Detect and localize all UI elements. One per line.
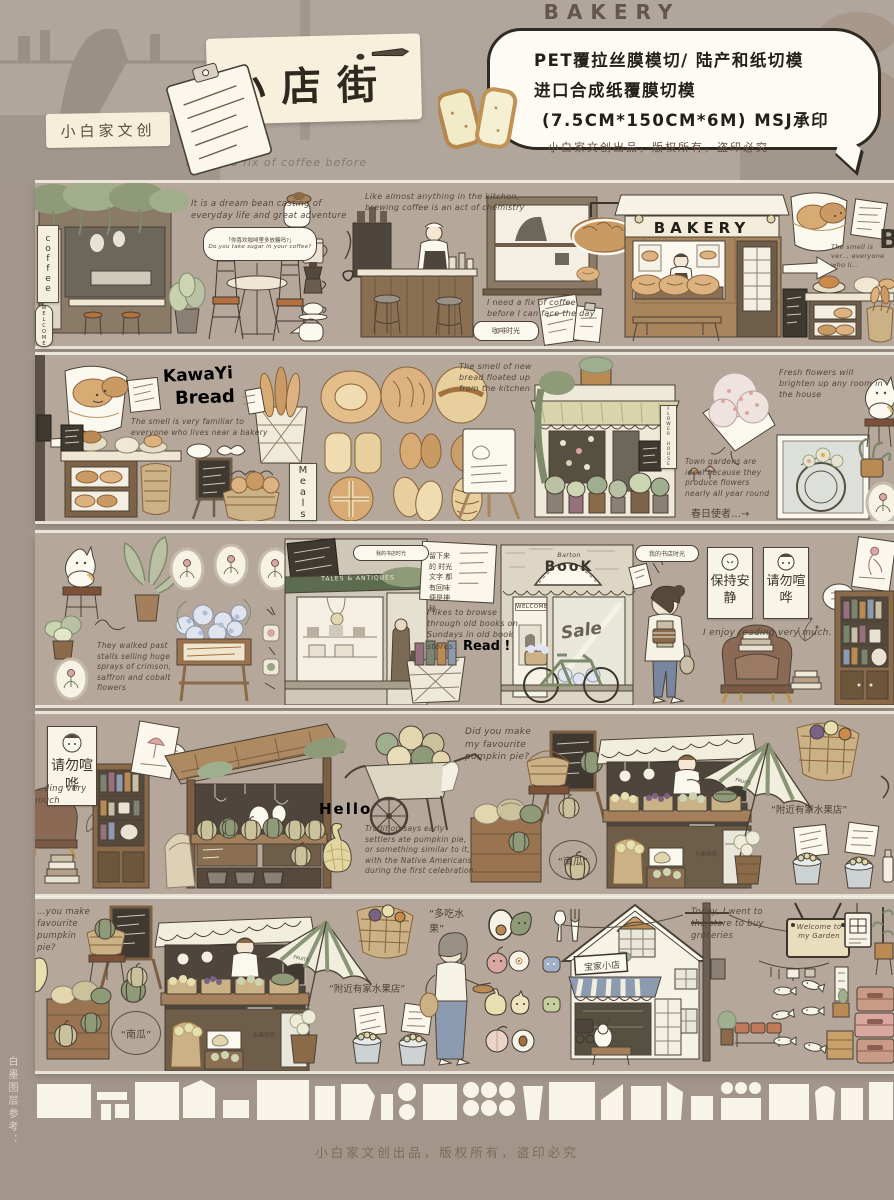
white-cat-on-stool bbox=[63, 547, 101, 619]
washi-strip-garden: …you make favourite pumpkin pie? “南瓜” FR… bbox=[35, 899, 894, 1071]
fruit-bucket bbox=[399, 1034, 427, 1065]
white-layer-label: 白墨图层参考： bbox=[4, 1056, 19, 1147]
bubble-en: Do you take sugar in your coffee? bbox=[209, 244, 312, 252]
framed-flower-picture bbox=[777, 435, 869, 519]
bread-counter-shop bbox=[61, 425, 181, 517]
flower-barrel bbox=[734, 831, 761, 884]
script-cn: 春日使者…→ bbox=[691, 505, 749, 520]
clothesline bbox=[759, 961, 829, 981]
script-fruit-shop: “附近有家水果店” bbox=[771, 802, 889, 816]
bakery-sign-text: BAKERY bbox=[627, 219, 777, 237]
girl-bubble: 我的书店时光 bbox=[635, 545, 699, 562]
script-dream: It is a dream bean casting of everyday l… bbox=[191, 199, 356, 223]
garden-sign-text: Welcome to my Garden bbox=[791, 923, 847, 941]
fruit-basket-top bbox=[357, 905, 413, 958]
vegetable-crate bbox=[47, 981, 111, 1059]
script-more-fruit: “多吃水果” bbox=[429, 905, 473, 935]
potted-plant bbox=[169, 273, 205, 333]
bread-bag bbox=[65, 366, 128, 432]
washi-strip-market: 请勿喧哗 …ding very much Hello Tradition say… bbox=[35, 714, 894, 894]
kawayi-heading: KawaYi bbox=[163, 363, 234, 387]
bakery-storefront bbox=[615, 195, 807, 341]
bouquet bbox=[703, 373, 775, 465]
shop-pill-bubble: 我的书店时光 bbox=[353, 545, 429, 561]
sale-card: 水果特卖 bbox=[690, 850, 722, 858]
script-pie: Did you make my favourite pumpkin pie? bbox=[465, 726, 539, 764]
product-spec-bubble: PET覆拉丝膜模切/ 陆产和纸切模 进口合成纸覆膜切模 (7.5CM*150CM… bbox=[487, 28, 881, 150]
fruit-bucket bbox=[845, 857, 873, 888]
poster-face-icons bbox=[707, 551, 809, 573]
heart-icon bbox=[343, 271, 353, 281]
baguette-basket bbox=[243, 367, 307, 463]
poster-face-icon bbox=[59, 732, 85, 754]
flower-cart bbox=[176, 599, 251, 701]
coffee-bar-counter bbox=[353, 207, 477, 337]
welcome-ribbon: WELCOME bbox=[35, 305, 53, 347]
script-fresh: Fresh flowers will brighten up any room … bbox=[779, 367, 884, 401]
coffee-vertical-sign: coffee bbox=[37, 225, 59, 303]
washi-strip-coffee: coffee WELCOME It is a dream bean castin… bbox=[35, 183, 894, 346]
sale-card: 水果特卖 bbox=[247, 1031, 281, 1039]
flower-barrel bbox=[290, 1010, 317, 1063]
footer-copyright: 小白家文创出品，版权所有，盗印必究 bbox=[0, 1142, 894, 1161]
pear-icons bbox=[485, 989, 529, 1015]
script-enjoy: I enjoy reading very much. bbox=[703, 627, 843, 640]
brand-label: 小白家文创 bbox=[46, 112, 171, 148]
spec-line: PET覆拉丝膜模切/ 陆产和纸切模 bbox=[534, 47, 804, 71]
meals-sign: Meals bbox=[289, 463, 317, 521]
peach-icons bbox=[486, 1026, 534, 1052]
script-smell: The smell is very familiar to everyone w… bbox=[131, 417, 271, 438]
flower-stamp bbox=[867, 483, 894, 521]
script-fix: I need a fix of coffee before I can face… bbox=[487, 297, 605, 319]
edge-letter: B bbox=[879, 225, 894, 255]
script-fruit-shop: “附近有家水果店” bbox=[329, 981, 441, 995]
fruit-stand bbox=[597, 734, 757, 888]
pumpkin-stamp: “南瓜” bbox=[111, 1011, 161, 1055]
washi-tape-poster: BAKERY 小白家文创 小店街 PET覆拉丝膜模切/ 陆产和纸切模 进口合成纸… bbox=[0, 0, 894, 1200]
small-crate bbox=[827, 1031, 853, 1059]
chat-tags bbox=[543, 957, 560, 1012]
script-today: Today, I went to the store to buy grocer… bbox=[691, 907, 779, 943]
flower-stamp bbox=[215, 545, 247, 585]
spec-line: 进口合成纸覆膜切模 bbox=[534, 77, 696, 101]
flower-shop bbox=[531, 357, 679, 517]
script-walked: They walked past stalls selling huge spr… bbox=[97, 641, 185, 694]
backdrop-bakery-sign: BAKERY bbox=[492, 0, 732, 24]
hello-script: Hello bbox=[319, 800, 372, 818]
edge-script: …ding very much bbox=[35, 784, 105, 808]
shopper-woman bbox=[420, 933, 493, 1065]
fruit-basket-top bbox=[797, 721, 859, 781]
washi-strip-bread: KawaYi Bread The smell is very familiar … bbox=[35, 355, 894, 521]
script-new-bread: The smell of new bread floated up from t… bbox=[459, 361, 541, 395]
pen-icon bbox=[352, 43, 410, 63]
bubble-cn: 「你喜欢咖啡里多放糖吗?」 bbox=[226, 236, 295, 244]
flower-stamp bbox=[171, 549, 203, 589]
small-potted-plant bbox=[45, 616, 81, 659]
script-kitchen: Like almost anything in the kitchen, bre… bbox=[365, 191, 540, 213]
script-gardens: Town gardens are ideal because they prod… bbox=[685, 457, 775, 499]
bistro-table-chairs bbox=[209, 253, 307, 341]
pumpkin-stamp: “南瓜” bbox=[549, 840, 597, 880]
read-tag: Read ! bbox=[463, 639, 510, 654]
reading-girl bbox=[629, 561, 694, 703]
milk-bottle bbox=[883, 850, 893, 882]
welcome-door-sign: WELCOME bbox=[515, 603, 547, 611]
garden-shop-house bbox=[563, 905, 707, 1065]
bread-heading: Bread bbox=[175, 386, 236, 409]
book-stack bbox=[45, 855, 79, 883]
fruit-stand bbox=[155, 917, 315, 1071]
apple-icons bbox=[487, 947, 529, 973]
fish-stickers bbox=[772, 979, 827, 1053]
note-cn: 留下来的 时光文字 都有回味 便是神秘 bbox=[429, 551, 455, 614]
street-pole bbox=[35, 355, 51, 521]
bookshelf bbox=[835, 591, 894, 705]
arrow-squiggle bbox=[881, 776, 889, 798]
avocado-icons bbox=[489, 910, 531, 940]
white-cloud-bun bbox=[217, 445, 245, 455]
spec-line: (7.5CM*150CM*6M) MSJ承印 bbox=[542, 107, 829, 131]
hanging-window-tag bbox=[845, 903, 871, 947]
book-sign: BooK bbox=[543, 559, 595, 575]
plant-on-stand bbox=[873, 907, 893, 975]
white-ink-reference-strip bbox=[35, 1078, 894, 1124]
stamp-column bbox=[263, 607, 279, 689]
edge-script: …you make favourite pumpkin pie? bbox=[37, 907, 95, 955]
publisher-note: 小白家文创出品，版权所有，盗印必究 bbox=[548, 139, 769, 155]
white-bun bbox=[187, 444, 211, 458]
flower-card bbox=[852, 537, 894, 592]
note-papers bbox=[794, 822, 879, 857]
flower-stamp bbox=[55, 659, 87, 699]
washi-strip-books: They walked past stalls selling huge spr… bbox=[35, 533, 894, 705]
flower-house-sign: FLOWER HOUSE bbox=[660, 405, 677, 469]
coffee-time-tag: 咖啡时光 bbox=[473, 321, 539, 341]
note-card bbox=[127, 377, 160, 412]
toast-stickers bbox=[438, 84, 518, 158]
squiggle bbox=[95, 620, 125, 630]
sugar-question-bubble: 「你喜欢咖啡里多放糖吗?」 Do you take sugar in your … bbox=[203, 227, 317, 261]
mushroom-card bbox=[131, 721, 179, 779]
script-tradition: Tradition says early settlers ate pumpki… bbox=[365, 824, 477, 877]
vertical-banner-plant bbox=[833, 967, 849, 1017]
waiting-chairs bbox=[718, 1011, 781, 1047]
squash-half bbox=[35, 958, 47, 992]
bookshelf bbox=[93, 764, 149, 888]
